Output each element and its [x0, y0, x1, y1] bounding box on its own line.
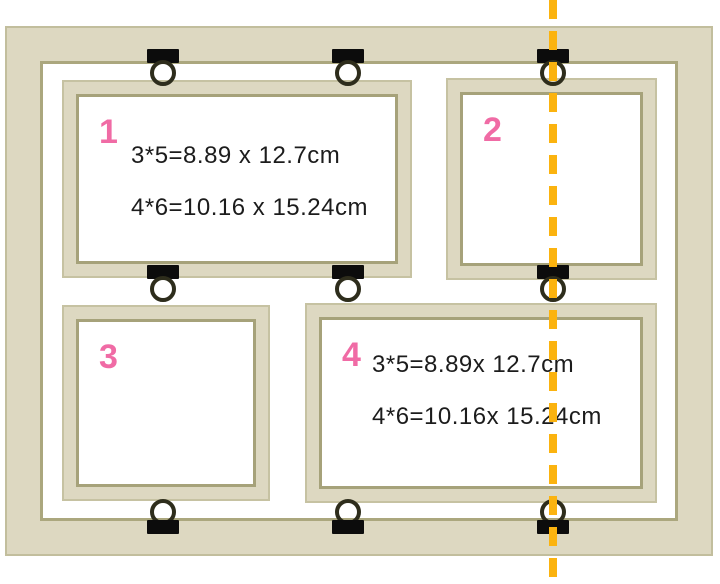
photo-frame-3: 3	[62, 305, 270, 501]
photo-frame-4: 4 3*5=8.89x 12.7cm 4*6=10.16x 15.24cm	[305, 303, 657, 503]
clip-ring-icon	[335, 276, 361, 302]
dashed-fold-line	[549, 0, 557, 584]
dimension-annotations-1: 3*5=8.89 x 12.7cm 4*6=10.16 x 15.24cm	[131, 141, 368, 245]
frame-number-4: 4	[342, 338, 361, 372]
dimension-line: 3*5=8.89 x 12.7cm	[131, 141, 368, 171]
frame-number-1: 1	[99, 115, 118, 149]
photo-opening-4: 4 3*5=8.89x 12.7cm 4*6=10.16x 15.24cm	[319, 317, 643, 489]
clip-bar-icon	[332, 520, 364, 534]
dimension-line: 3*5=8.89x 12.7cm	[372, 350, 602, 380]
dimension-line: 4*6=10.16x 15.24cm	[372, 402, 602, 432]
clip-ring-icon	[150, 60, 176, 86]
frame-number-2: 2	[483, 113, 502, 147]
clip-ring-icon	[335, 60, 361, 86]
collage-frame-diagram: 1 3*5=8.89 x 12.7cm 4*6=10.16 x 15.24cm …	[0, 0, 720, 584]
photo-opening-3: 3	[76, 319, 256, 487]
binder-clip-icon	[147, 265, 179, 302]
binder-clip-icon	[332, 499, 364, 534]
dimension-line: 4*6=10.16 x 15.24cm	[131, 193, 368, 223]
photo-opening-1: 1 3*5=8.89 x 12.7cm 4*6=10.16 x 15.24cm	[76, 94, 398, 264]
dimension-annotations-4: 3*5=8.89x 12.7cm 4*6=10.16x 15.24cm	[372, 350, 602, 454]
binder-clip-icon	[332, 265, 364, 302]
clip-bar-icon	[147, 520, 179, 534]
photo-frame-1: 1 3*5=8.89 x 12.7cm 4*6=10.16 x 15.24cm	[62, 80, 412, 278]
binder-clip-icon	[332, 49, 364, 86]
clip-ring-icon	[150, 276, 176, 302]
binder-clip-icon	[147, 499, 179, 534]
binder-clip-icon	[147, 49, 179, 86]
frame-number-3: 3	[99, 340, 118, 374]
